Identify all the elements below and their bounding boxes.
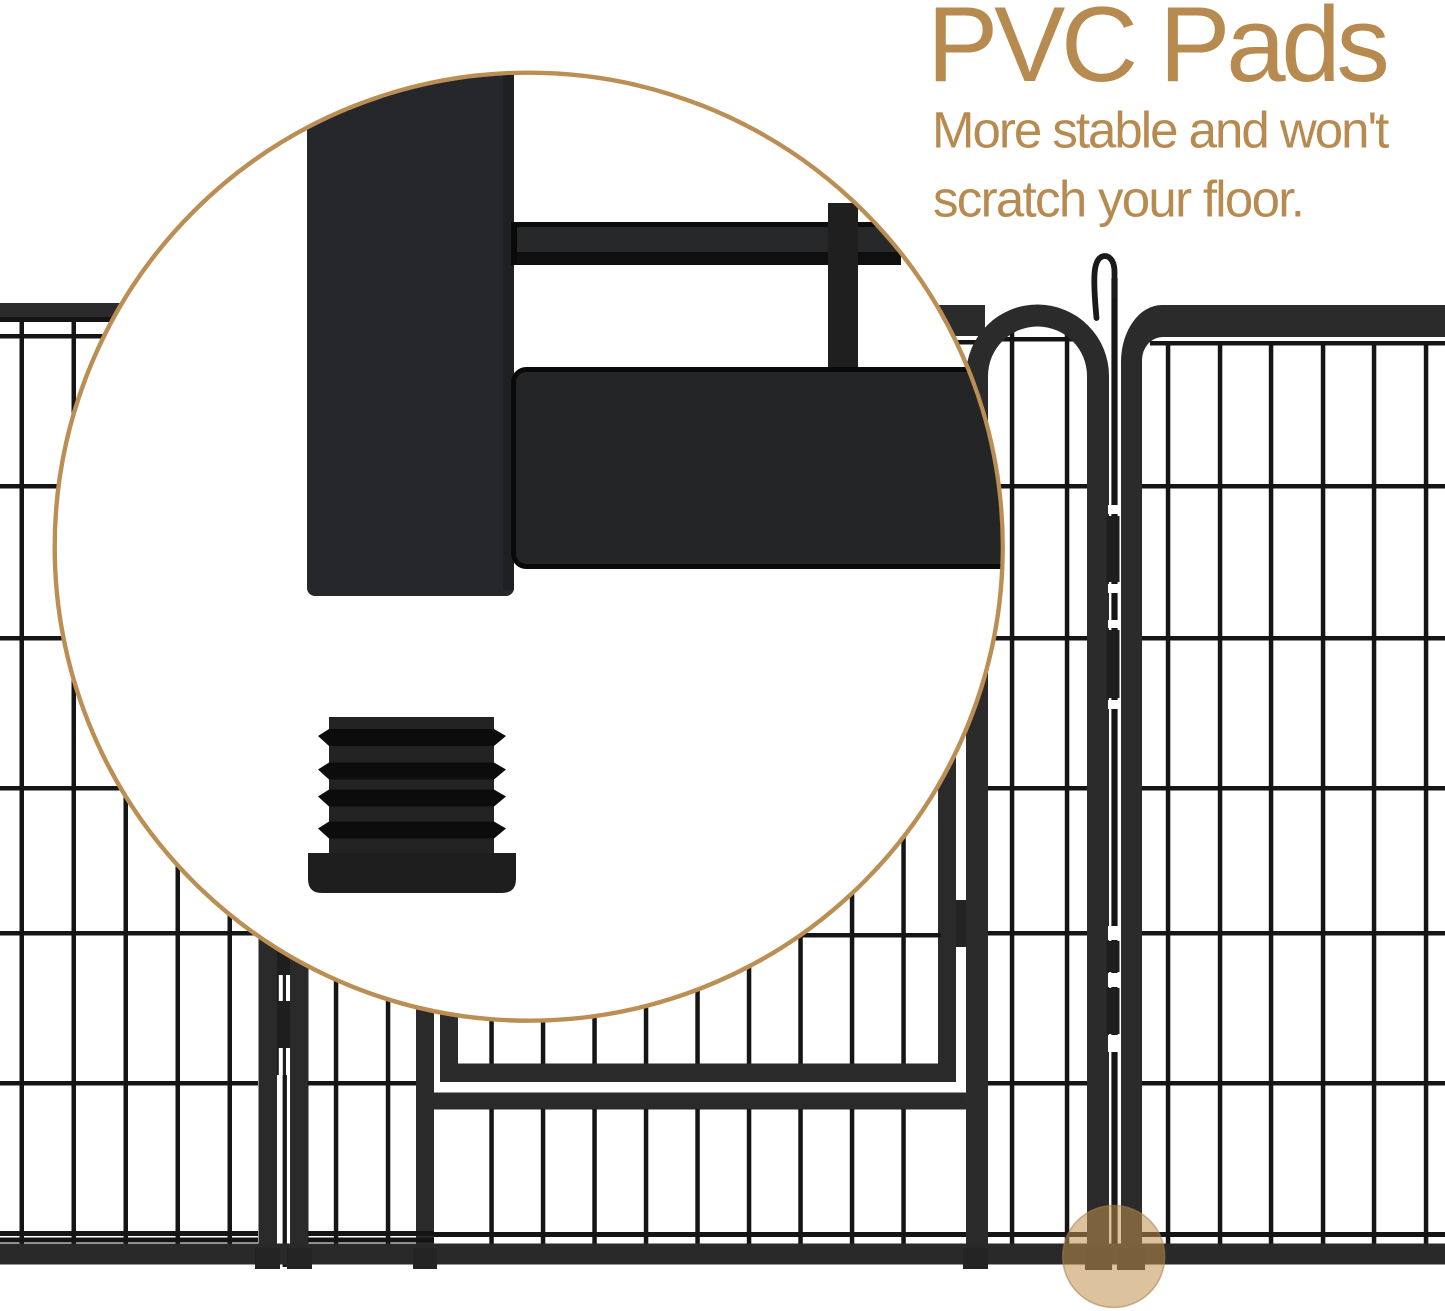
svg-text:More stable and won't: More stable and won't — [932, 102, 1389, 159]
svg-text:PVC Pads: PVC Pads — [927, 0, 1386, 104]
svg-text:scratch your floor.: scratch your floor. — [933, 171, 1303, 228]
